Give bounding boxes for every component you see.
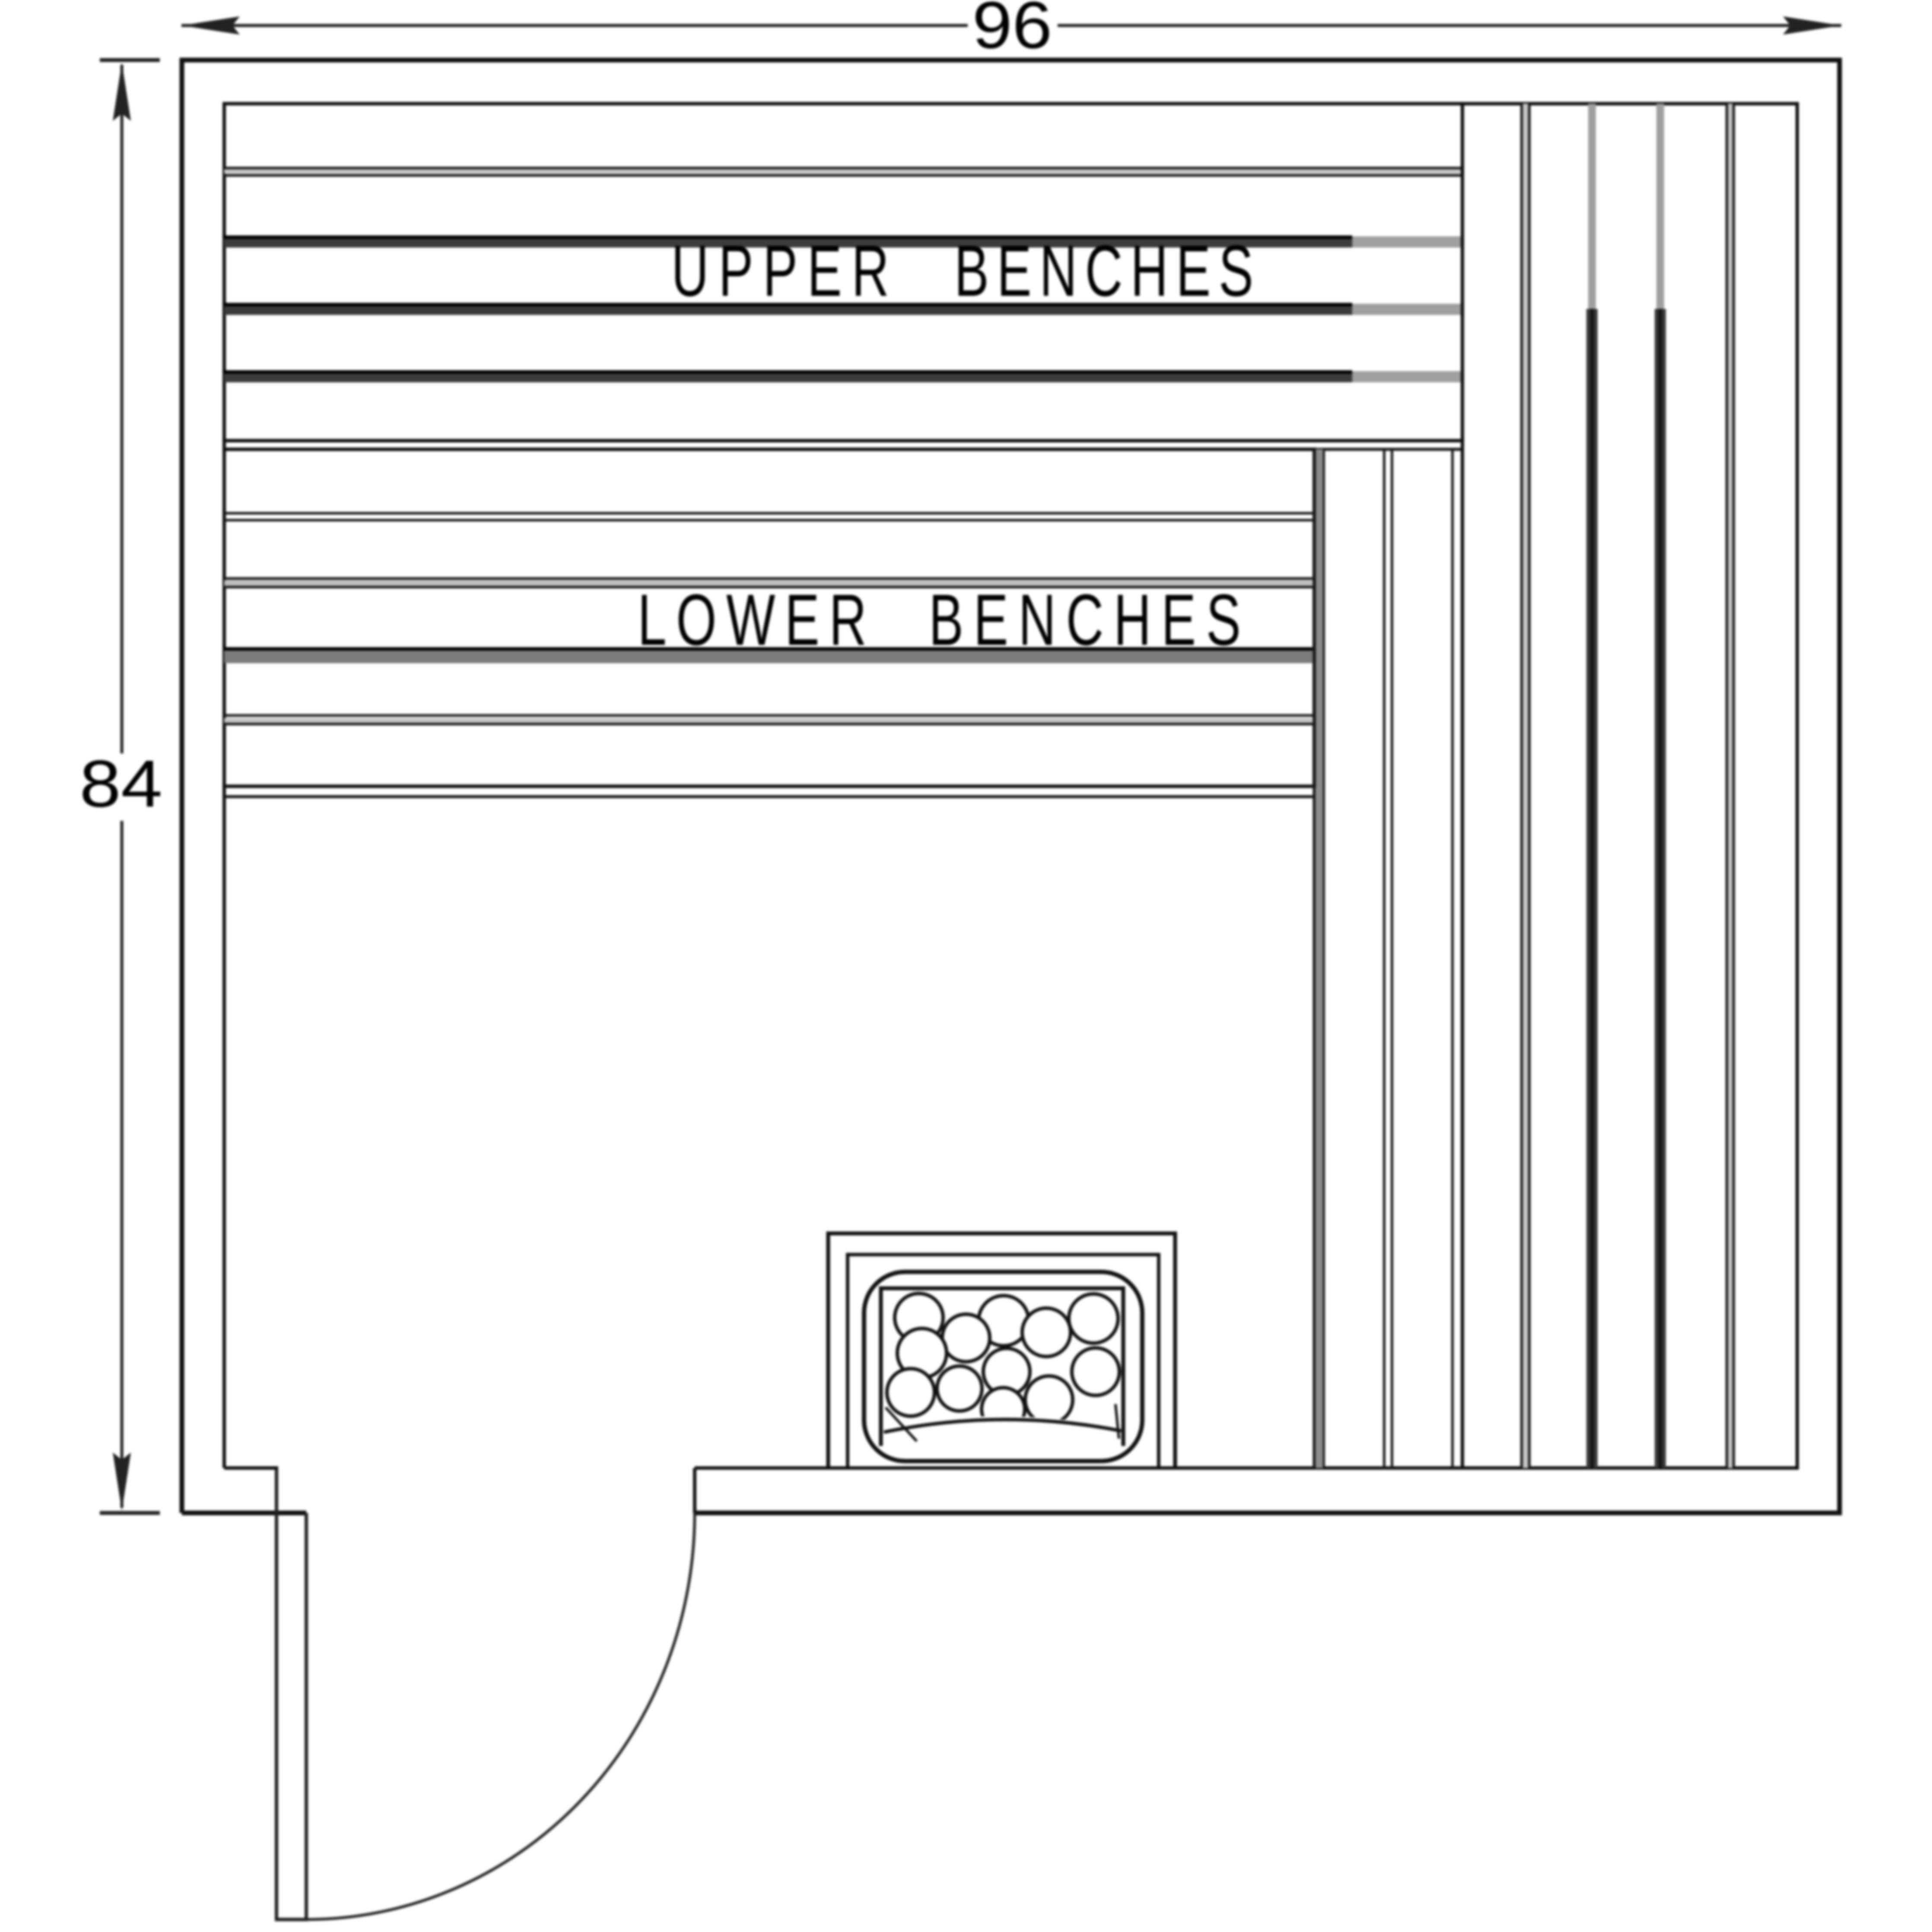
svg-text:BENCHES: BENCHES [954,230,1253,311]
svg-text:BENCHES: BENCHES [929,579,1241,661]
svg-text:96: 96 [972,0,1052,62]
svg-text:UPPER: UPPER [671,230,889,311]
svg-text:84: 84 [79,747,162,821]
